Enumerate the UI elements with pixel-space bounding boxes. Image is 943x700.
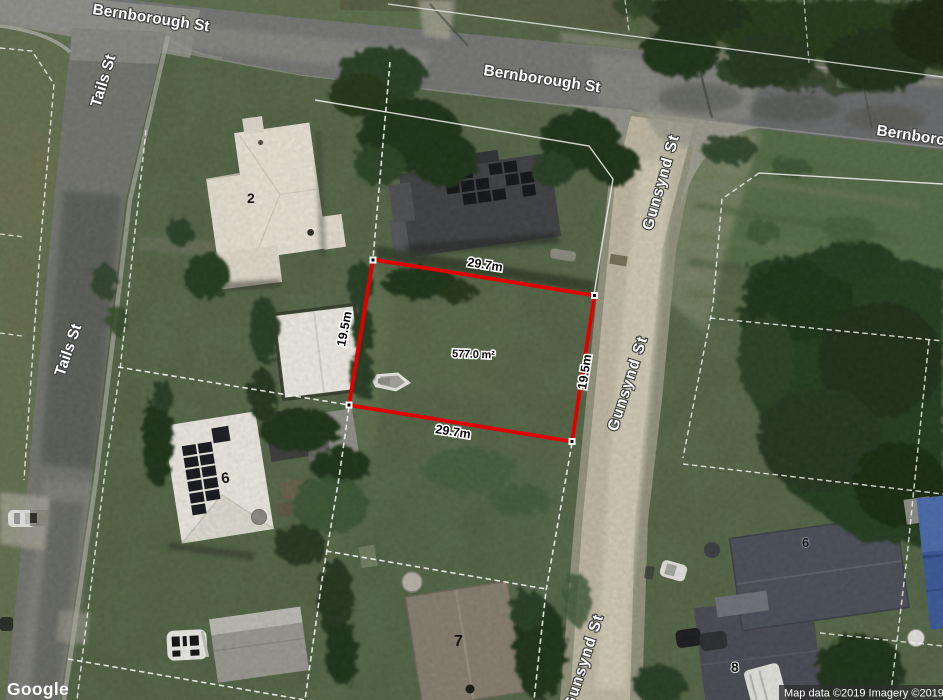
svg-text:Map data ©2019 Imagery ©2019: Map data ©2019 Imagery ©2019 — [784, 688, 943, 700]
svg-text:2: 2 — [247, 190, 255, 206]
svg-text:7: 7 — [454, 633, 463, 650]
svg-text:Google: Google — [7, 679, 69, 699]
svg-text:577.0 m²: 577.0 m² — [452, 348, 495, 361]
svg-text:8: 8 — [731, 659, 739, 675]
svg-text:6: 6 — [802, 535, 809, 550]
